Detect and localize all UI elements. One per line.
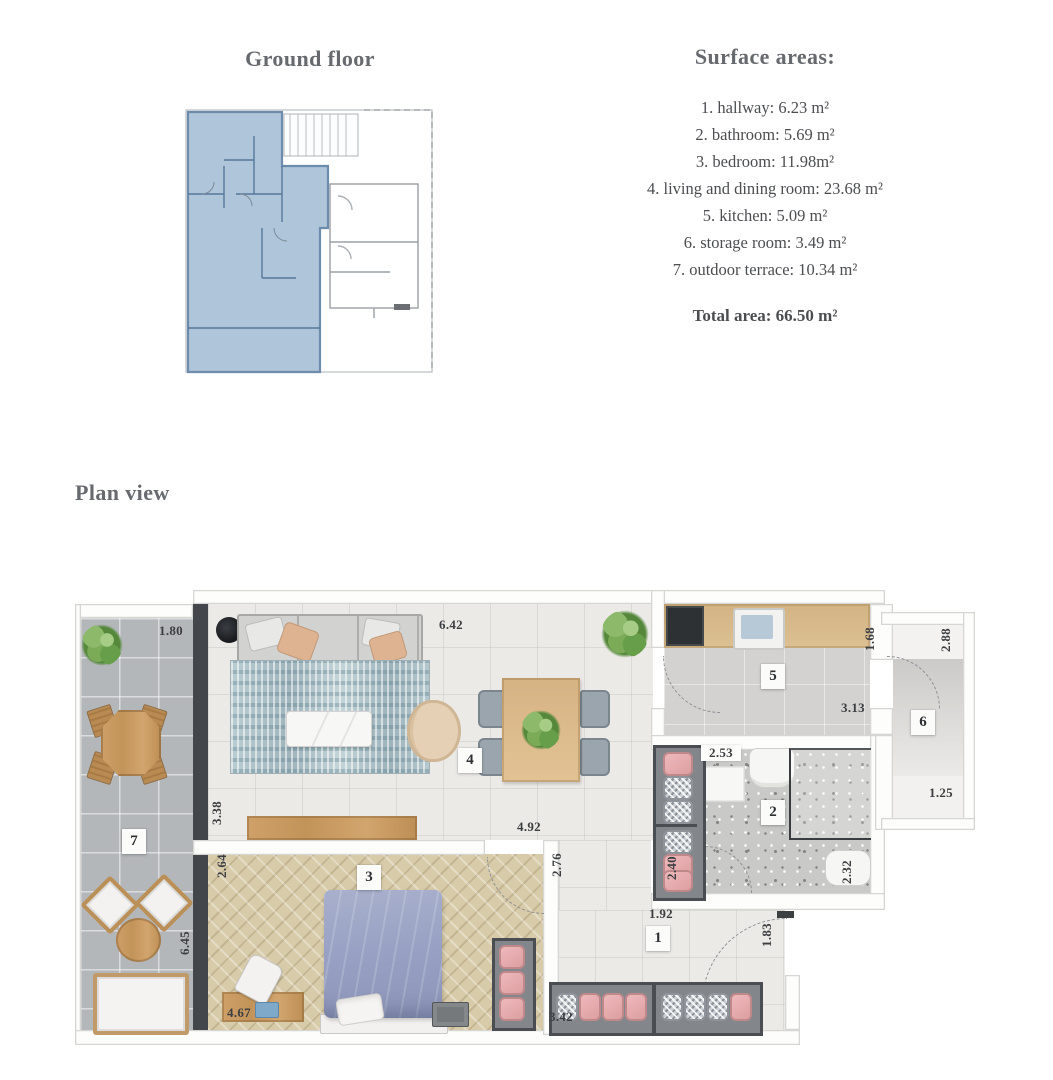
closet-pink-box (579, 993, 601, 1021)
sink-basin (741, 615, 773, 639)
surface-area-item: 6. storage room: 3.49 m² (565, 229, 965, 256)
wall-terrace-divider (193, 604, 208, 1030)
plan-view-render: 1 2 3 4 5 6 7 1.80 6.42 1.68 2.88 3.13 1… (75, 590, 975, 1045)
coffee-table (287, 712, 371, 746)
dim-hallway-width: 1.92 (643, 906, 679, 922)
closet-knit-basket (707, 993, 729, 1021)
surface-areas-list: 1. hallway: 6.23 m² 2. bathroom: 5.69 m²… (565, 94, 965, 283)
room-label-kitchen: 5 (761, 664, 785, 689)
closet-knit-basket (661, 993, 683, 1021)
dim-wardrobe-depth: 2.40 (664, 850, 680, 886)
dim-kitchen-counter: 1.68 (862, 621, 878, 657)
wardrobe-knit-basket (663, 776, 693, 800)
wardrobe-divider (656, 824, 697, 827)
dim-kitchen-width: 3.13 (835, 700, 871, 716)
wall-kitchen-storage-lower (870, 708, 893, 735)
dim-bedroom-width: 4.92 (511, 819, 547, 835)
bedroom-wardrobe (492, 938, 536, 1031)
wardrobe-pink-box (499, 945, 525, 969)
surface-area-item: 3. bedroom: 11.98m² (565, 148, 965, 175)
entrance-door-leaf (777, 911, 794, 918)
room-label-living: 4 (458, 748, 482, 773)
ground-floor-title: Ground floor (180, 46, 440, 72)
wall-storage-right (963, 612, 975, 830)
wardrobe-pink-box (499, 971, 525, 995)
shower (789, 748, 871, 840)
wall-storage-bottom (881, 818, 975, 830)
laptop (255, 1002, 279, 1018)
dim-living-width: 6.42 (433, 617, 469, 633)
surface-area-item: 2. bathroom: 5.69 m² (565, 121, 965, 148)
hallway-closet-right (653, 982, 763, 1036)
closet-pink-box (602, 993, 624, 1021)
washing-machine (703, 766, 745, 802)
armchair (407, 700, 461, 762)
terrace-plant (81, 624, 123, 666)
living-plant (601, 610, 649, 658)
room-label-terrace: 7 (122, 829, 146, 854)
dim-bedroom-left: 2.64 (214, 848, 230, 884)
dim-bathroom-width: 2.53 (701, 745, 741, 761)
dining-chair (580, 690, 610, 728)
surface-area-item: 7. outdoor terrace: 10.34 m² (565, 256, 965, 283)
terrace-bench (93, 973, 189, 1035)
wall-storage-top (881, 612, 975, 625)
nightstand (432, 1002, 469, 1027)
room-label-hallway: 1 (646, 926, 670, 951)
closet-pink-box (625, 993, 647, 1021)
neighbour-unit (330, 184, 418, 318)
surface-area-item: 1. hallway: 6.23 m² (565, 94, 965, 121)
wall-top (193, 590, 885, 604)
terrace-floor (80, 618, 193, 1030)
cooktop (666, 606, 704, 646)
dim-storage-depth: 2.88 (938, 622, 954, 658)
dim-desk-wall: 4.67 (221, 1005, 257, 1021)
corridor-floor (559, 840, 651, 912)
plan-view-title: Plan view (75, 480, 170, 506)
dim-bedroom-door: 2.76 (549, 847, 565, 883)
wall-entrance-stub (785, 975, 800, 1030)
surface-area-item: 5. kitchen: 5.09 m² (565, 202, 965, 229)
wall-terrace-left (75, 604, 81, 1045)
table-plant (521, 710, 561, 750)
room-label-storage: 6 (911, 710, 935, 735)
total-area: Total area: 66.50 m² (565, 306, 965, 326)
wardrobe-pink-box (663, 752, 693, 776)
staircase (284, 114, 358, 156)
dim-entrance-door: 1.83 (759, 917, 775, 953)
wall-kitchen-left-upper (651, 590, 665, 648)
room-label-bedroom: 3 (357, 865, 381, 890)
dim-terrace-depth: 6.45 (177, 925, 193, 961)
dim-storage-width: 1.25 (923, 785, 959, 801)
tv-console (247, 816, 417, 840)
wall-storage-left (875, 735, 893, 830)
page: { "ground_floor": { "title": "Ground flo… (0, 0, 1053, 1080)
ground-floor-plan (178, 96, 440, 388)
dining-chair (580, 738, 610, 776)
wardrobe-knit-basket (663, 800, 693, 824)
kitchen-sink (733, 608, 785, 650)
terrace-round-table (116, 918, 161, 962)
surface-area-item: 4. living and dining room: 23.68 m² (565, 175, 965, 202)
closet-pink-box (730, 993, 752, 1021)
surface-areas-title: Surface areas: (640, 44, 890, 70)
closet-knit-basket (684, 993, 706, 1021)
wardrobe-pink-box (499, 997, 525, 1021)
dim-bathroom-depth: 2.32 (839, 854, 855, 890)
dim-living-left: 3.38 (209, 795, 225, 831)
room-label-bathroom: 2 (761, 800, 785, 825)
wall-bedroom-top (193, 840, 485, 855)
dim-terrace-width: 1.80 (153, 623, 189, 639)
terrace-dining-table (101, 710, 161, 776)
dim-closet-width: 3.42 (543, 1009, 579, 1025)
wall-terrace-top (75, 604, 193, 618)
